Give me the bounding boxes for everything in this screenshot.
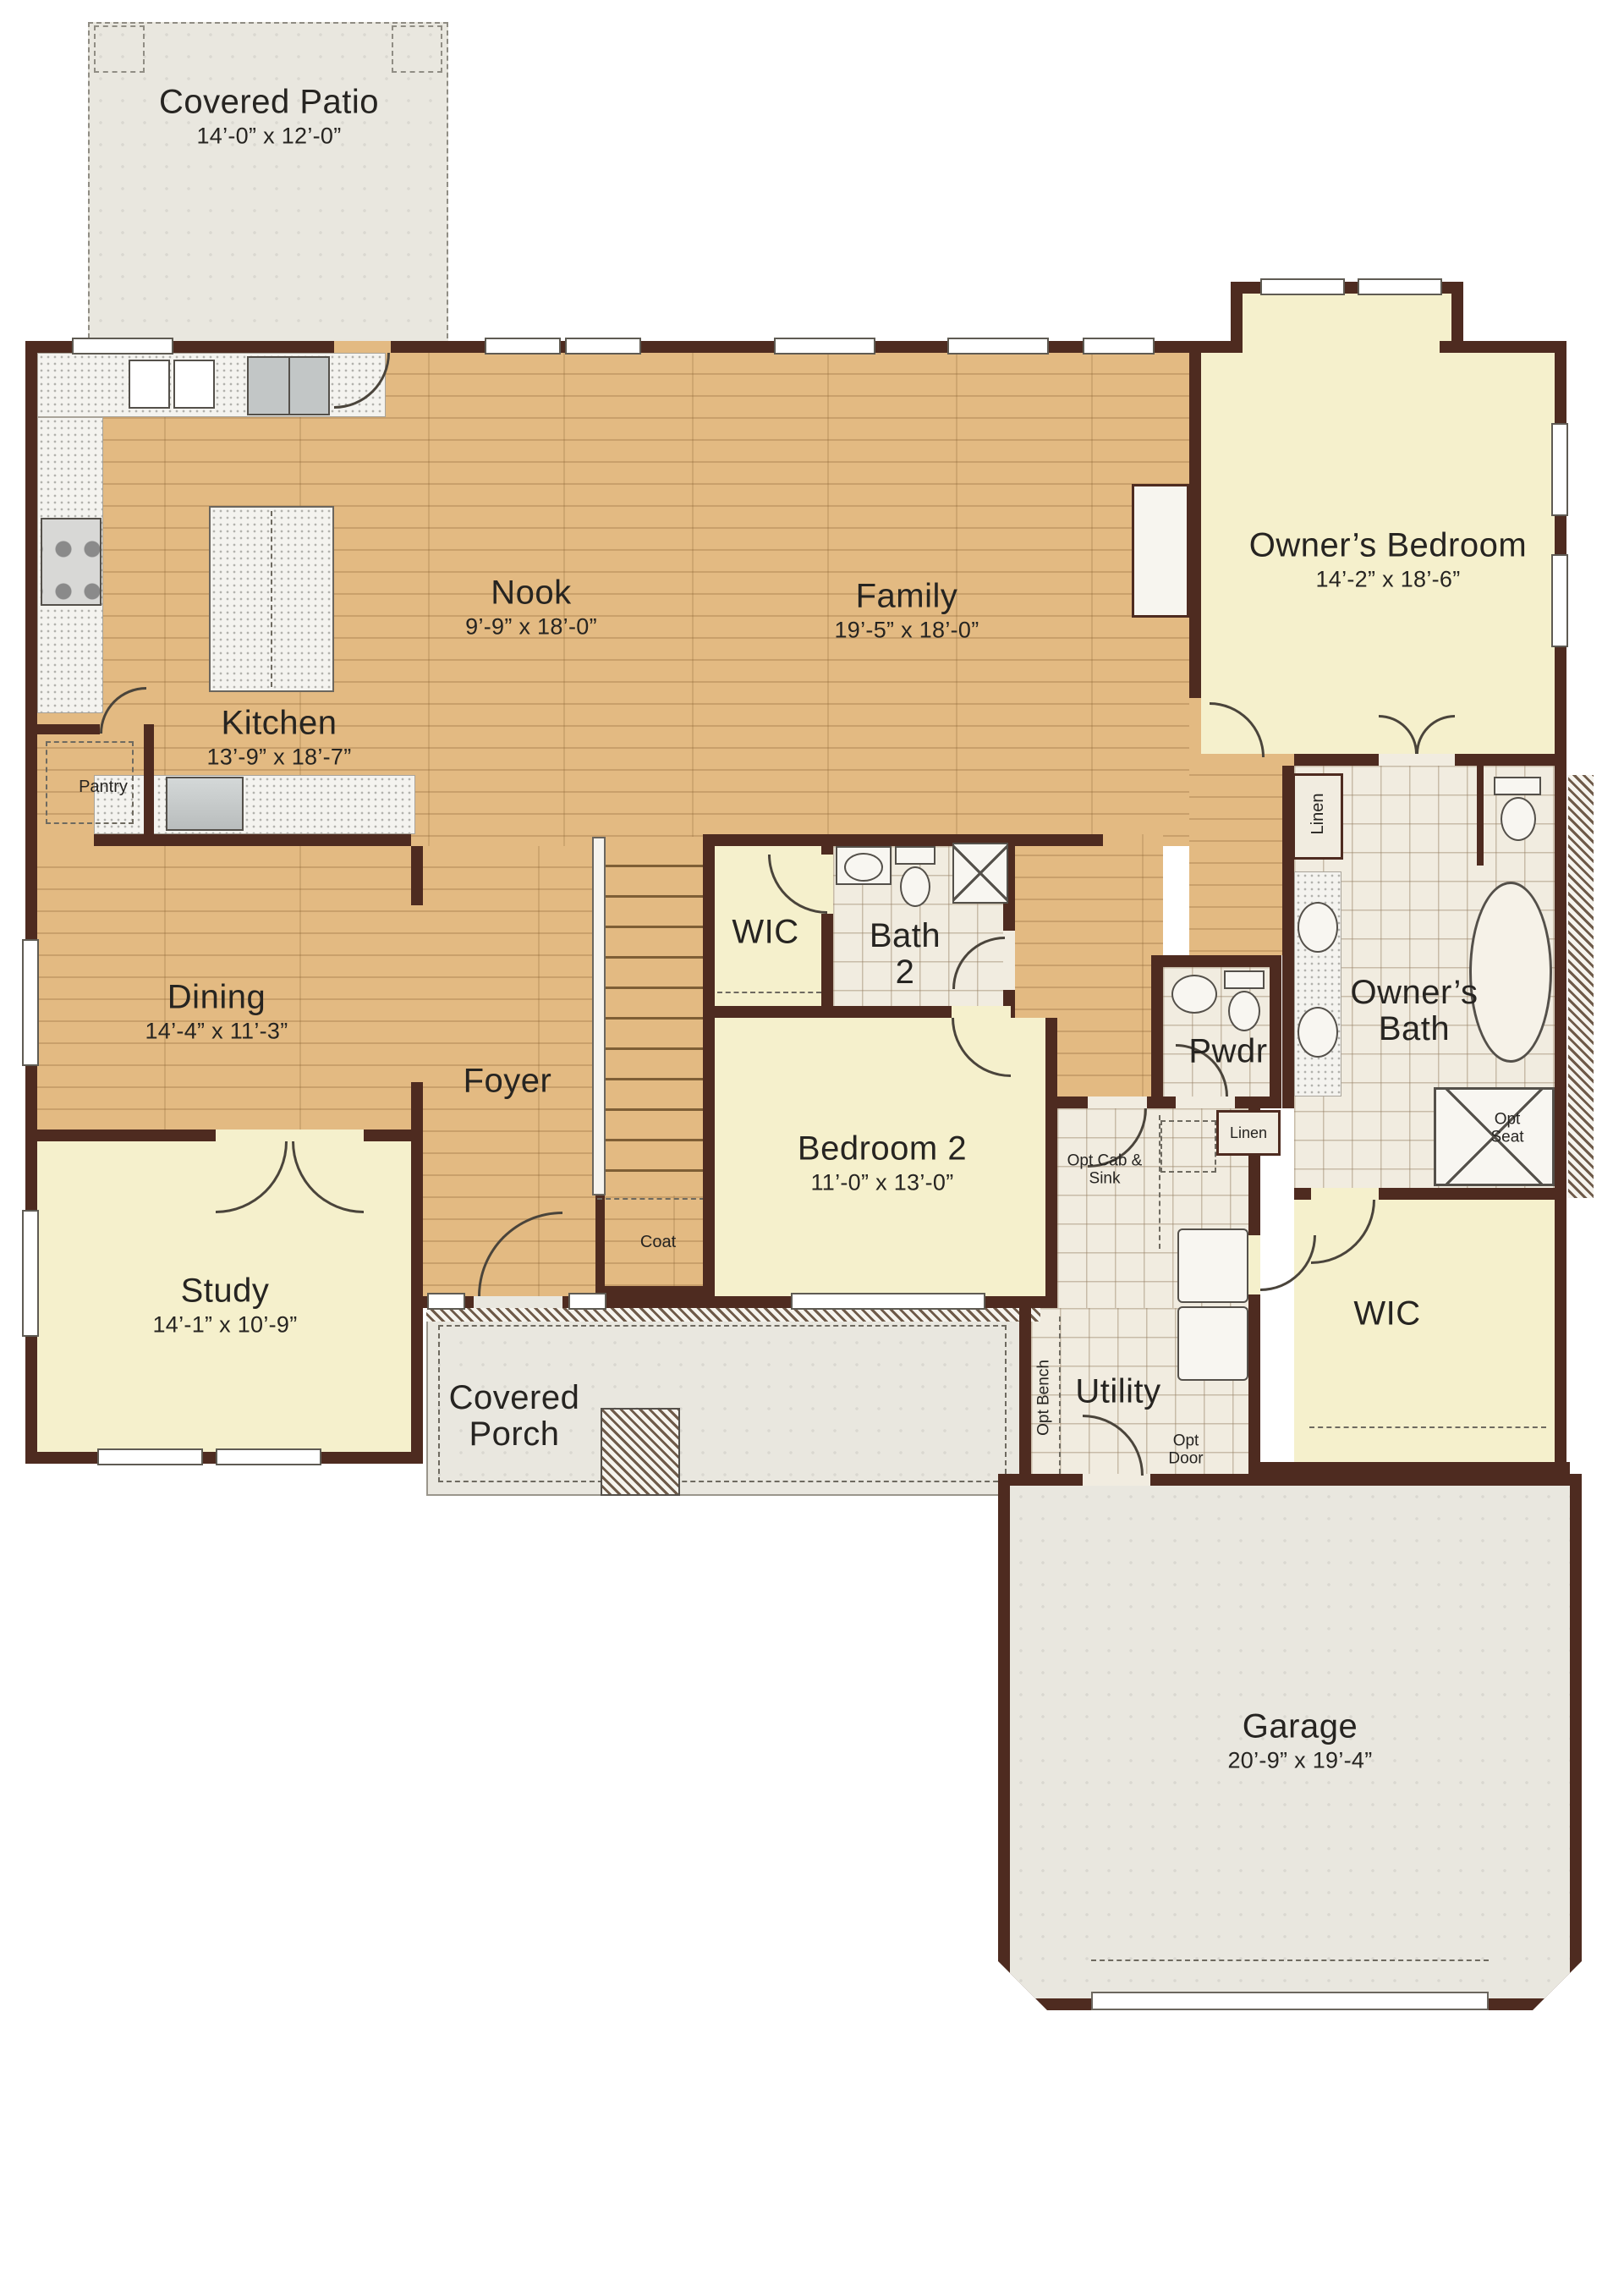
window — [1551, 423, 1568, 516]
room-label-pwdr: Pwdr — [1188, 1033, 1267, 1069]
kitchen-counter-bottom — [94, 775, 415, 834]
window — [774, 338, 875, 355]
sink-basin — [173, 360, 215, 409]
coat-closet-wall — [595, 1286, 715, 1296]
annotation-pantry: Pantry — [79, 778, 128, 796]
island-divider-dashed — [271, 511, 272, 687]
wic2-rod-dashed — [1309, 1426, 1546, 1428]
coat-rod-dashed — [597, 1198, 705, 1200]
door-opening — [1311, 1188, 1379, 1200]
room-dims: 9’-9” x 18’-0” — [465, 614, 597, 640]
pwdr-wall-top — [1151, 955, 1281, 967]
garage-door — [1091, 1992, 1489, 2010]
room-name: Garage — [1227, 1708, 1372, 1745]
kitchen-sink — [129, 360, 215, 409]
room-dims: 14’-1” x 10’-9” — [152, 1312, 297, 1338]
pwdr-wall-right — [1270, 955, 1281, 1108]
owners-toilet-tank — [1494, 777, 1541, 795]
door-opening — [1248, 1235, 1260, 1294]
hall-wall-top — [1015, 834, 1103, 846]
pwdr-sink — [1171, 975, 1217, 1014]
owners-toilet-bowl — [1501, 797, 1536, 841]
room-name: Dining — [145, 979, 288, 1015]
bedroom2-wall-right — [1045, 1018, 1057, 1308]
bath2-toilet-bowl — [900, 866, 930, 907]
room-label-nook: Nook 9’-9” x 18’-0” — [465, 574, 597, 640]
exterior-wall-top — [1440, 341, 1566, 353]
room-label-foyer: Foyer — [464, 1063, 552, 1099]
pwdr-toilet-bowl — [1228, 991, 1260, 1031]
room-name: Covered Patio — [159, 84, 379, 120]
room-dims: 14’-4” x 11’-3” — [145, 1019, 288, 1045]
dishwasher — [166, 777, 244, 831]
toilet-compartment-wall — [1477, 766, 1484, 866]
room-name: Owner’s Bath — [1347, 975, 1482, 1047]
front-door-opening — [474, 1296, 562, 1308]
annotation-linen-2: Linen — [1230, 1124, 1267, 1141]
room-label-owners-bath: Owner’s Bath — [1347, 975, 1482, 1047]
door-opening — [1083, 1474, 1150, 1486]
owners-bath-sink — [1298, 902, 1338, 953]
room-name: Foyer — [464, 1063, 552, 1099]
room-label-family: Family 19’-5” x 18’-0” — [834, 578, 979, 643]
room-name: Family — [834, 578, 979, 614]
room-label-dining: Dining 14’-4” x 11’-3” — [145, 979, 288, 1044]
door-opening — [37, 834, 94, 846]
door-opening — [216, 1130, 364, 1141]
room-name: Owner’s Bedroom — [1249, 527, 1527, 563]
utility-wall-left-lower — [1019, 1308, 1031, 1486]
patio-post — [392, 25, 442, 73]
opt-bench-dashed — [1059, 1316, 1061, 1474]
wic-bedroom2-wall-left — [703, 846, 715, 1296]
pwdr-toilet-tank — [1224, 970, 1265, 989]
stair-rail — [592, 837, 606, 1195]
room-label-wic: WIC — [732, 914, 798, 950]
window — [1551, 554, 1568, 647]
porch-post — [601, 1408, 680, 1496]
annotation-linen-1: Linen — [1309, 794, 1327, 835]
floor-plan: Covered Patio 14’-0” x 12’-0” Kitchen 13… — [0, 0, 1624, 2270]
door-opening — [952, 1006, 1011, 1018]
room-name: Bath 2 — [865, 918, 946, 991]
dining-foyer-stub — [411, 1082, 423, 1141]
coat-closet-wall — [595, 1195, 605, 1296]
room-label-covered-porch: Covered Porch — [438, 1380, 590, 1453]
window — [1260, 278, 1345, 295]
window — [22, 939, 39, 1066]
door-opening — [334, 341, 391, 353]
owners-hall-floor — [1189, 754, 1294, 955]
bath2-shower — [952, 843, 1008, 904]
room-label-owners-bedroom: Owner’s Bedroom 14’-2” x 18’-6” — [1249, 527, 1527, 592]
patio-post — [94, 25, 145, 73]
dryer — [1177, 1306, 1248, 1381]
window — [565, 338, 641, 355]
room-name: Covered Porch — [438, 1380, 590, 1453]
room-name: Bedroom 2 — [798, 1130, 967, 1167]
family-wall-right — [1189, 353, 1201, 754]
owners-bath-sink — [1298, 1007, 1338, 1058]
wic-rod-dashed — [717, 992, 821, 993]
washer — [1177, 1228, 1248, 1303]
window — [72, 338, 173, 355]
room-dims: 14’-0” x 12’-0” — [159, 124, 379, 150]
room-dims: 14’-2” x 18’-6” — [1249, 567, 1527, 593]
window — [1083, 338, 1155, 355]
bath2-toilet-tank — [895, 846, 935, 865]
fridge-door-line — [288, 358, 290, 414]
door-opening — [1189, 698, 1201, 754]
staircase — [606, 837, 704, 1195]
garage-door-dashed-line — [1091, 1959, 1489, 1961]
refrigerator — [247, 356, 330, 415]
cooktop — [41, 518, 101, 606]
window — [485, 338, 561, 355]
room-dims: 20’-9” x 19’-4” — [1227, 1748, 1372, 1774]
room-label-wic-2: WIC — [1353, 1295, 1420, 1332]
porch-top-wall-hatch — [426, 1308, 1040, 1322]
room-name: WIC — [732, 914, 798, 950]
window — [1358, 278, 1442, 295]
annotation-opt-door: Opt Door — [1155, 1432, 1216, 1469]
room-label-study: Study 14’-1” x 10’-9” — [152, 1272, 297, 1338]
sink-basin — [129, 360, 170, 409]
window — [97, 1448, 203, 1465]
window — [427, 1293, 465, 1310]
owners-bedroom-bay-floor — [1243, 294, 1451, 353]
door-opening — [1176, 1097, 1235, 1108]
room-label-bedroom-2: Bedroom 2 11’-0” x 13’-0” — [798, 1130, 967, 1195]
bath2-sink — [844, 853, 883, 882]
room-name: Study — [152, 1272, 297, 1309]
room-dims: 13’-9” x 18’-7” — [206, 745, 351, 771]
annotation-opt-seat: Opt Seat — [1477, 1111, 1538, 1147]
optional-appliance-dashed — [1160, 1120, 1216, 1173]
pantry-wall-right — [144, 724, 154, 834]
window — [568, 1293, 606, 1310]
room-name: Pwdr — [1188, 1033, 1267, 1069]
annotation-coat: Coat — [640, 1233, 676, 1251]
room-label-garage: Garage 20’-9” x 19’-4” — [1227, 1708, 1372, 1773]
exterior-wall-top — [1201, 341, 1243, 353]
door-opening — [1003, 931, 1015, 990]
window — [22, 1210, 39, 1337]
room-dims: 19’-5” x 18’-0” — [834, 618, 979, 644]
room-label-kitchen: Kitchen 13’-9” x 18’-7” — [206, 705, 351, 770]
annotation-opt-cab-sink: Opt Cab & Sink — [1057, 1152, 1152, 1189]
room-name: Nook — [465, 574, 597, 611]
exterior-brick-hatch — [1568, 775, 1594, 1198]
room-label-utility: Utility — [1075, 1373, 1160, 1410]
room-label-bath-2: Bath 2 — [865, 918, 946, 991]
opt-cab-dashed — [1159, 1115, 1160, 1249]
door-opening — [1088, 1097, 1147, 1108]
room-name: Utility — [1075, 1373, 1160, 1410]
wic2-wall-bottom — [1260, 1462, 1570, 1474]
window — [791, 1293, 985, 1310]
window — [947, 338, 1049, 355]
window — [216, 1448, 321, 1465]
room-dims: 11’-0” x 13’-0” — [798, 1170, 967, 1196]
door-opening — [1379, 754, 1455, 766]
room-label-covered-patio: Covered Patio 14’-0” x 12’-0” — [159, 84, 379, 149]
family-media-niche — [1132, 484, 1189, 618]
annotation-opt-bench: Opt Bench — [1034, 1360, 1052, 1436]
dining-foyer-stub — [411, 846, 423, 905]
pwdr-wall-left — [1151, 967, 1163, 1108]
room-name: WIC — [1353, 1295, 1420, 1332]
room-name: Kitchen — [206, 705, 351, 741]
